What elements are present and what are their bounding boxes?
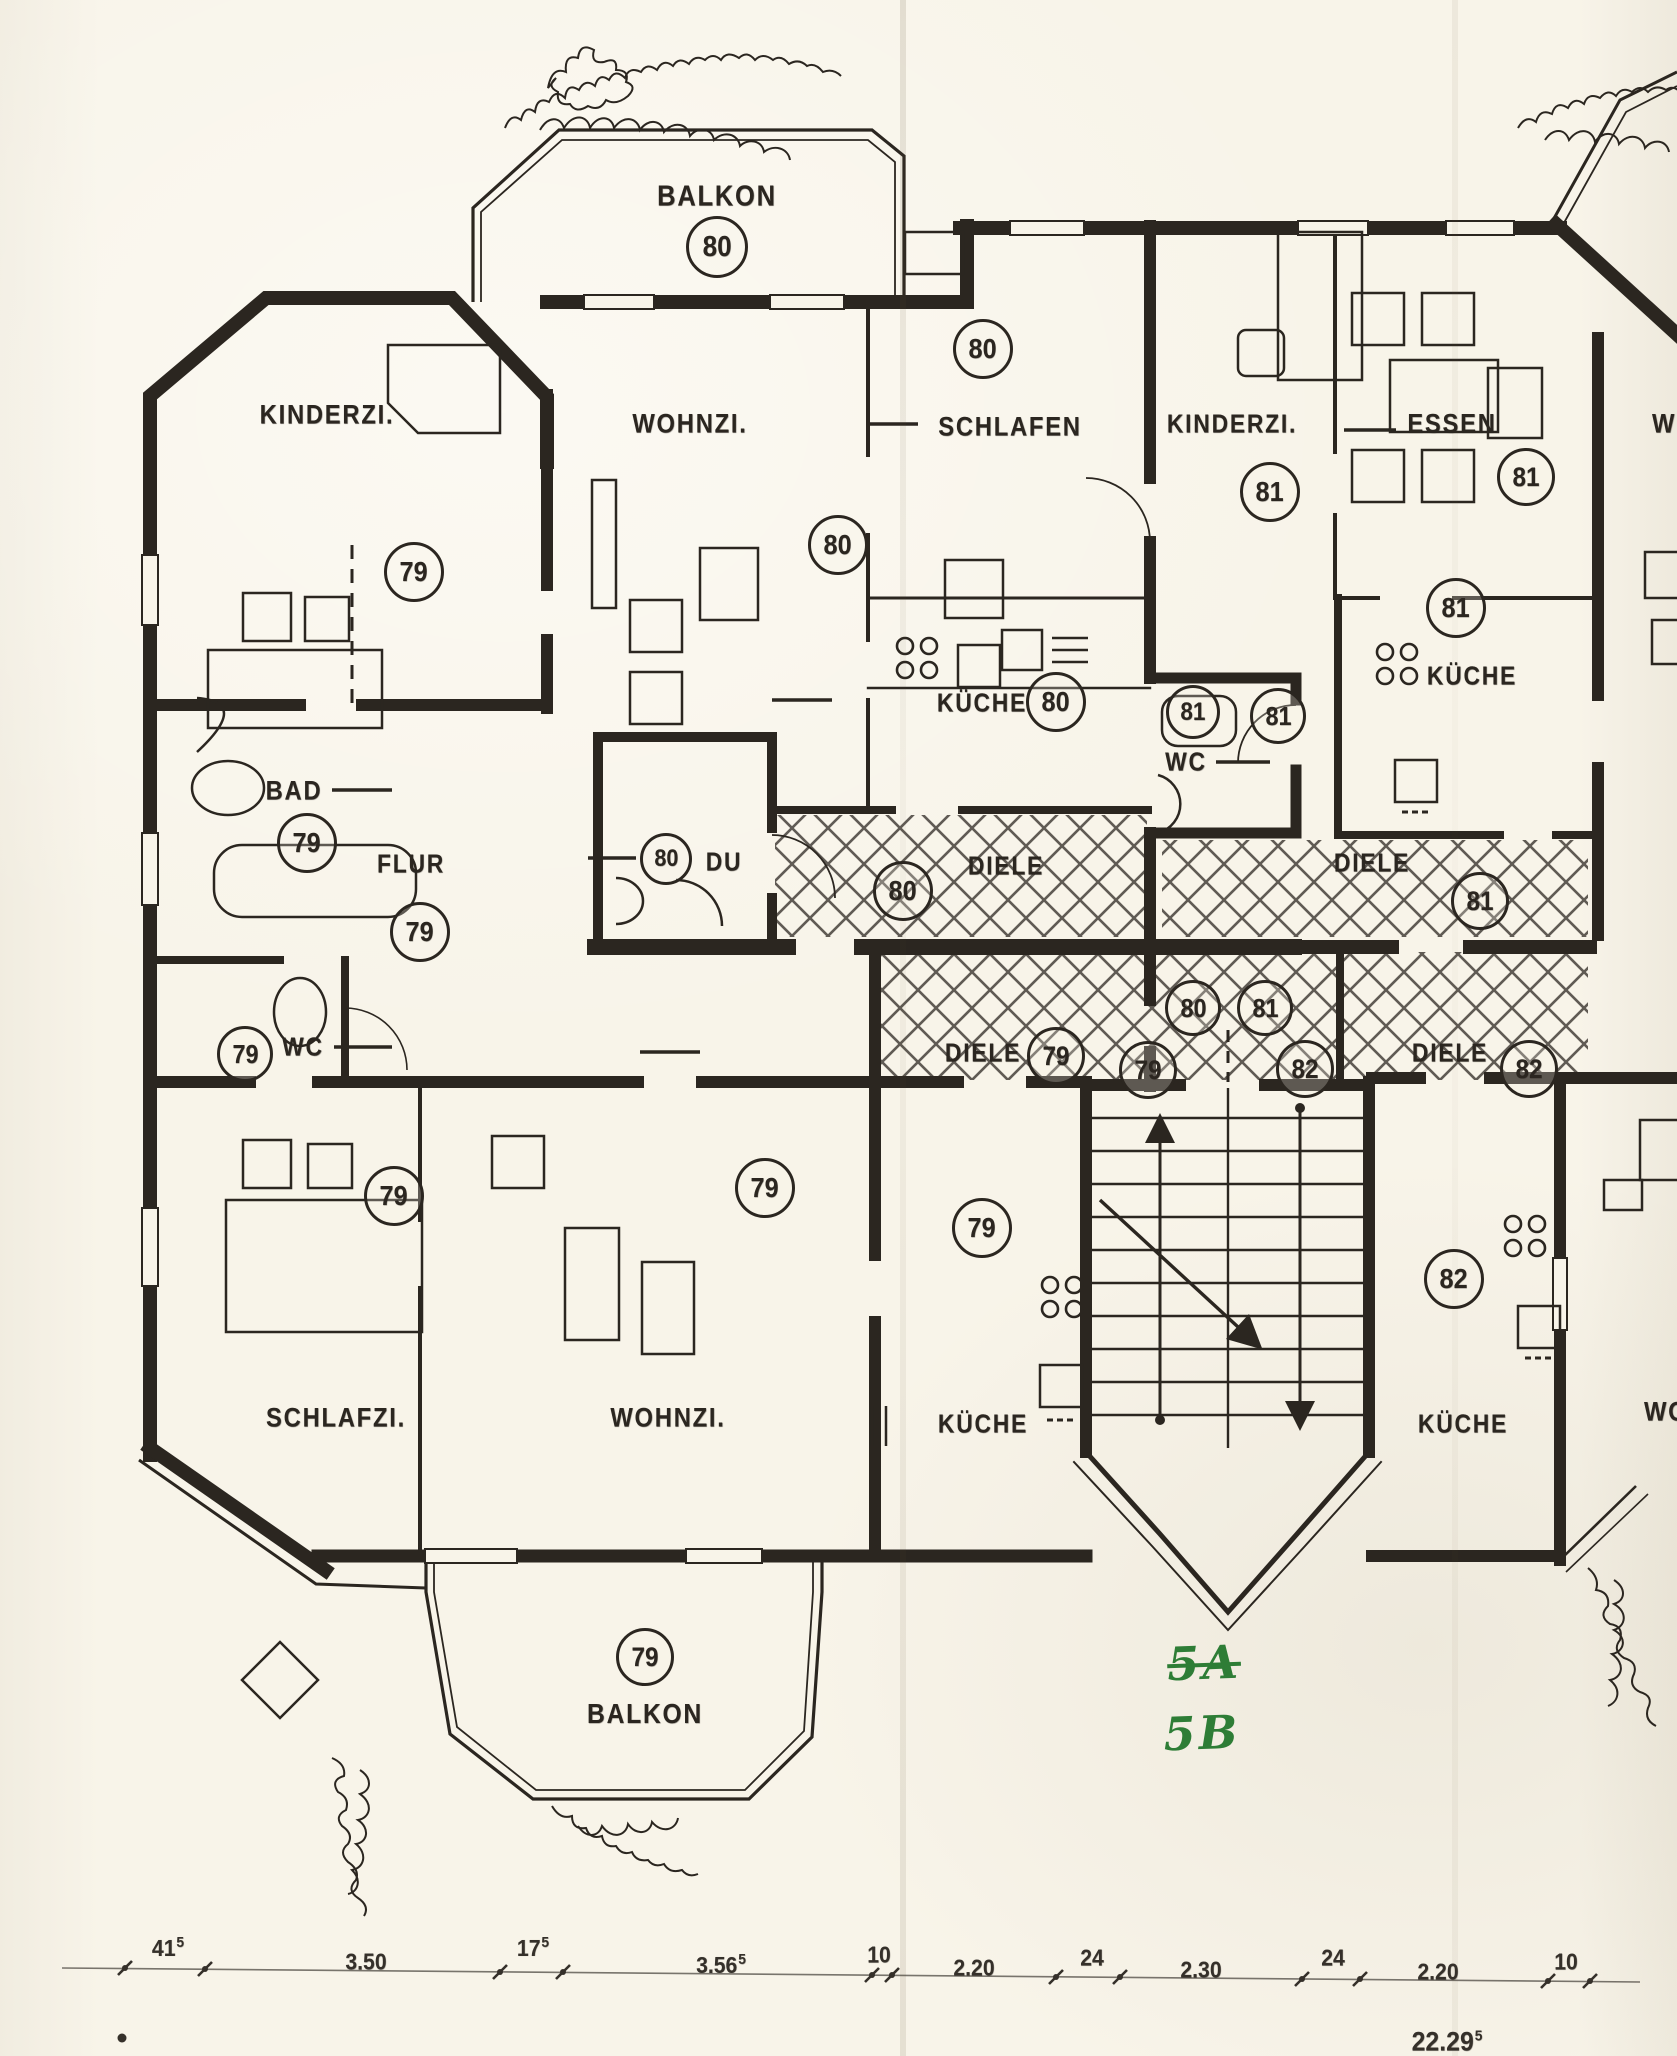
unit-number-circle-81: 81 [1240,462,1300,522]
room-label-kueche-79: KÜCHE [938,1409,1028,1440]
unit-number-circle-79: 79 [735,1158,795,1218]
unit-number-circle-79: 79 [952,1198,1012,1258]
room-label-balkon-top: BALKON [657,181,777,214]
unit-number-circle-80: 80 [953,319,1013,379]
room-label-diele-79: DIELE [945,1038,1021,1069]
unit-number-circle-81: 81 [1497,448,1555,506]
unit-number-circle-80: 80 [640,833,692,885]
unit-number-circle-79: 79 [384,542,444,602]
unit-number-circle-80: 80 [1026,672,1086,732]
dimension-total-partial: 22.295 [1412,2027,1483,2056]
room-label-schlafen-80: SCHLAFEN [938,412,1081,443]
room-label-kinderzi-79: KINDERZI. [260,400,395,431]
dimension-value: 10 [867,1942,891,1969]
room-label-kueche-81: KÜCHE [1427,661,1517,692]
unit-number-circle-81: 81 [1237,980,1293,1036]
unit-number-circle-80: 80 [808,515,868,575]
room-label-wohnzi-79: WOHNZI. [610,1403,725,1434]
unit-number-circle-82: 82 [1500,1040,1558,1098]
room-label-schlafzi-79: SCHLAFZI. [266,1403,406,1434]
room-label-wohnzi-right-top: WOHNZI. [1652,409,1677,440]
unit-number-circle-81: 81 [1166,685,1220,739]
room-label-diele-81: DIELE [1334,848,1410,879]
floor-plan-page: BALKONKINDERZI.WOHNZI.SCHLAFENKINDERZI.E… [0,0,1677,2056]
unit-number-circle-79: 79 [390,902,450,962]
room-label-flur-79: FLUR [377,849,445,880]
room-label-kueche-82: KÜCHE [1418,1409,1508,1440]
dimension-value: 175 [517,1934,549,1962]
unit-number-circle-82: 82 [1276,1040,1334,1098]
unit-number-circle-81: 81 [1451,872,1509,930]
unit-number-circle-81: 81 [1250,688,1306,744]
unit-number-circle-82: 82 [1424,1249,1484,1309]
washbasin-icon [616,878,643,924]
dimension-value: 2.20 [1417,1959,1458,1986]
dimension-value: 3.50 [345,1949,386,1976]
dimension-value: 24 [1321,1945,1345,1972]
unit-number-circle-79: 79 [364,1166,424,1226]
dimension-value: 415 [152,1934,184,1962]
room-label-diele-82: DIELE [1412,1038,1488,1069]
dimension-value: 2.20 [953,1955,994,1982]
room-label-wc-81: WC [1165,747,1207,778]
stairs-up-arrow-icon [1156,1128,1165,1425]
shower-icon [676,880,722,926]
room-label-diele-80: DIELE [968,851,1044,882]
unit-number-circle-79: 79 [1119,1041,1177,1099]
washbasin-icon [1158,775,1180,833]
handwritten-note-5b: 5B [1163,1705,1242,1762]
room-label-kueche-80: KÜCHE [937,688,1027,719]
unit-number-circle-81: 81 [1426,578,1486,638]
room-label-essen-81: ESSEN [1407,409,1496,440]
unit-number-circle-80: 80 [873,861,933,921]
room-label-kinderzi-81: KINDERZI. [1167,409,1297,440]
dimension-line [62,1961,1640,2043]
handwritten-note-5a: 5A [1166,1635,1242,1692]
toilet-icon [192,761,264,815]
staircase [1092,1088,1363,1448]
unit-number-circle-80: 80 [686,216,748,278]
room-label-bad-79: BAD [266,776,323,807]
unit-number-circle-79: 79 [1027,1027,1085,1085]
room-label-wc-79: WC [282,1032,324,1063]
dimension-value: 2.30 [1180,1957,1221,1984]
dimension-value: 3.565 [696,1951,746,1979]
diamond-planter-icon [242,1642,318,1718]
unit-number-circle-79: 79 [616,1628,674,1686]
room-label-du-80: DU [706,847,743,878]
unit-number-circle-80: 80 [1165,980,1221,1036]
room-label-wohnzi-80: WOHNZI. [632,409,747,440]
dimension-value: 10 [1554,1949,1578,1976]
room-label-wohnzi-right-bottom: WOHNZI. [1644,1397,1677,1428]
unit-number-circle-79: 79 [217,1026,273,1082]
dimension-value: 24 [1080,1945,1104,1972]
room-label-balkon-79: BALKON [587,1698,703,1730]
unit-number-circle-79: 79 [277,813,337,873]
